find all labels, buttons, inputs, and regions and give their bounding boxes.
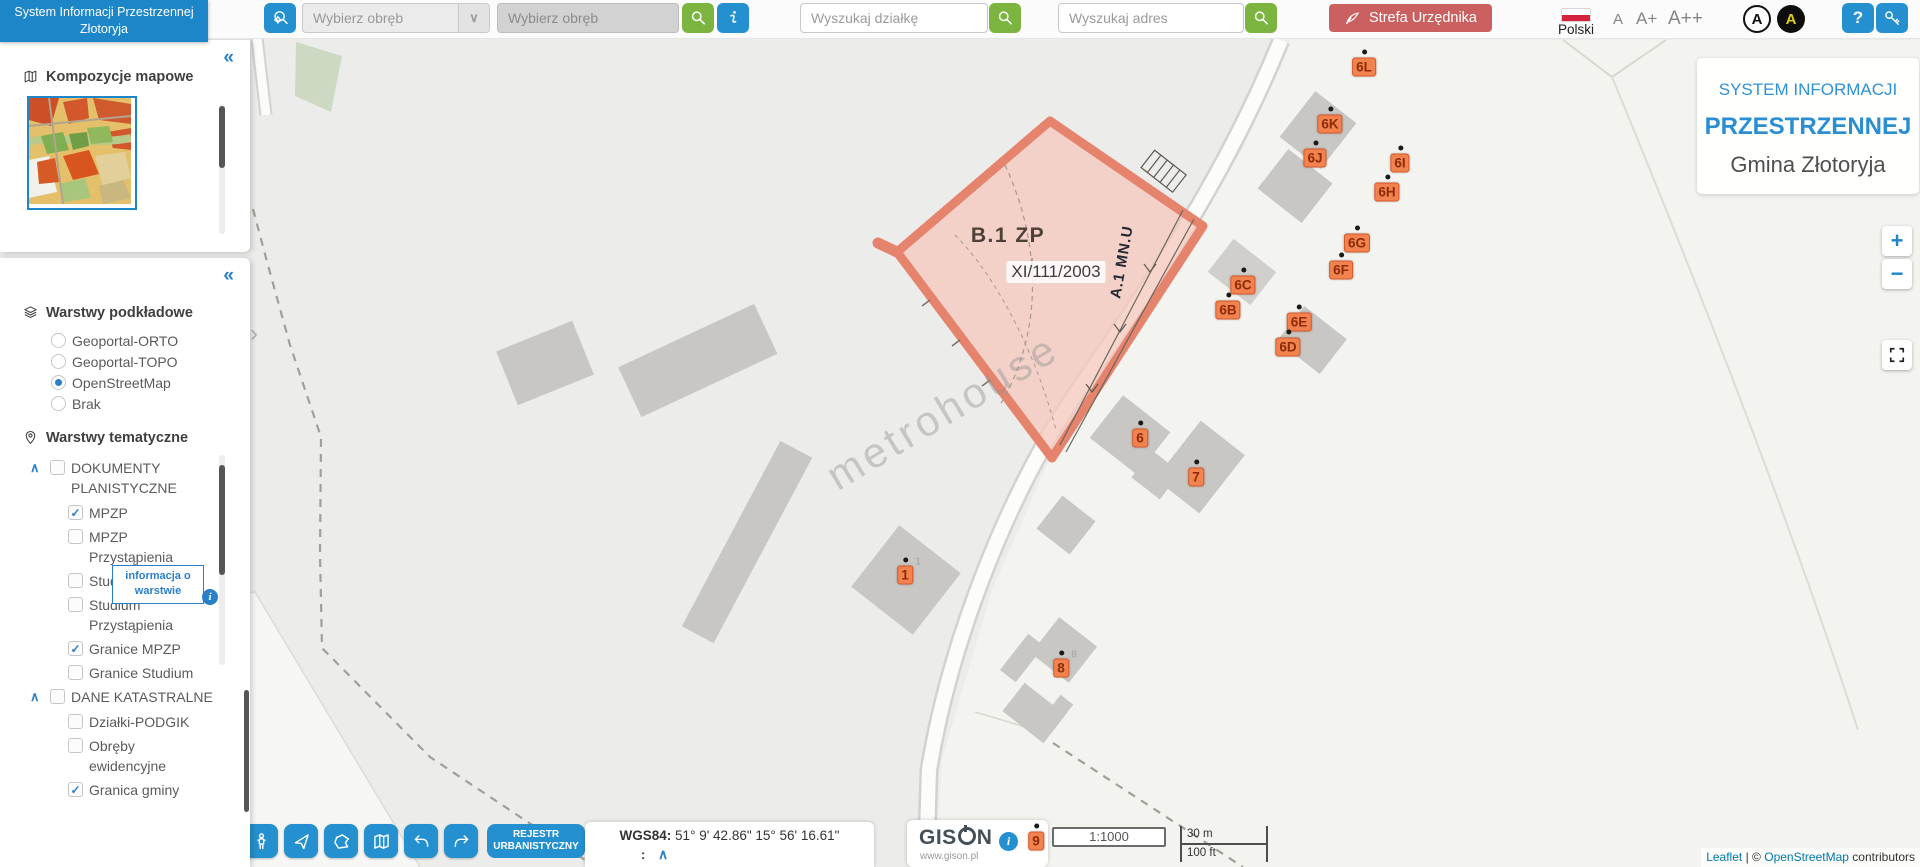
fullscreen-icon bbox=[1887, 345, 1907, 365]
panel-expand-arrow-icon[interactable]: › bbox=[250, 320, 266, 350]
checkbox[interactable] bbox=[50, 460, 65, 475]
rejestr-urbanistyczny-label: REJESTR URBANISTYCZNY bbox=[491, 829, 581, 854]
tool-navigate-button[interactable] bbox=[284, 824, 318, 858]
scale-ratio-input[interactable]: 1:1000 bbox=[1052, 827, 1166, 847]
coords-label: WGS84: bbox=[620, 828, 672, 843]
layer-item-label: Granica gminy bbox=[89, 780, 179, 800]
layer-item-row[interactable]: Działki-PODGIK bbox=[68, 712, 250, 732]
zoom-out-button[interactable]: − bbox=[1882, 259, 1912, 289]
layer-tooltip: informacja o warstwie bbox=[112, 565, 204, 604]
layer-item-row[interactable]: Obręby ewidencyjne bbox=[68, 736, 250, 776]
chevron-up-icon[interactable]: ∧ bbox=[30, 687, 44, 707]
chevron-down-icon[interactable]: ∨ bbox=[458, 4, 489, 32]
tool-draw-polygon-button[interactable] bbox=[324, 824, 358, 858]
zoom-control: + − bbox=[1882, 226, 1912, 292]
checkbox-checked[interactable]: ✓ bbox=[68, 505, 83, 520]
app-title-text: System Informacji Przestrzennej Złotoryj… bbox=[8, 4, 200, 38]
layer-group-row[interactable]: ∧DOKUMENTY PLANISTYCZNE bbox=[30, 458, 250, 498]
adres-search-button[interactable] bbox=[1245, 3, 1277, 33]
base-layer-option[interactable]: Geoportal-ORTO bbox=[51, 330, 250, 351]
layer-item-label: Działki-PODGIK bbox=[89, 712, 189, 732]
green-area bbox=[295, 42, 342, 112]
map-marker-6I[interactable]: 6I bbox=[1390, 154, 1409, 173]
info-script-icon bbox=[723, 8, 743, 28]
app-title: System Informacji Przestrzennej Złotoryj… bbox=[0, 0, 208, 42]
obreb-select[interactable]: Wybierz obręb ∨ bbox=[302, 3, 490, 33]
checkbox[interactable] bbox=[68, 665, 83, 680]
gison-url[interactable]: www.gison.pl bbox=[920, 851, 978, 862]
map-title-card: SYSTEM INFORMACJI PRZESTRZENNEJ Gmina Zł… bbox=[1697, 58, 1919, 194]
map-graphics: metrohouse bbox=[0, 0, 1920, 867]
strefa-urzednika-label: Strefa Urzędnika bbox=[1369, 10, 1477, 26]
map-marker-6C[interactable]: 6C bbox=[1230, 276, 1255, 295]
obreb-select-value: Wybierz obręb bbox=[303, 10, 458, 26]
map-marker-6K[interactable]: 6K bbox=[1317, 115, 1342, 134]
fullscreen-button[interactable] bbox=[1882, 340, 1912, 370]
title-line-1: SYSTEM INFORMACJI bbox=[1697, 80, 1919, 100]
map-pin-icon bbox=[22, 429, 39, 446]
key-icon bbox=[1882, 8, 1902, 28]
advanced-search-button[interactable] bbox=[264, 3, 296, 33]
marker-ghost-label: 8 bbox=[1071, 647, 1077, 664]
navigate-icon bbox=[291, 831, 312, 852]
base-layer-label: OpenStreetMap bbox=[72, 373, 171, 393]
radio[interactable] bbox=[51, 396, 66, 411]
map-marker-6D[interactable]: 6D bbox=[1275, 338, 1300, 357]
rejestr-urbanistyczny-button[interactable]: REJESTR URBANISTYCZNY bbox=[487, 824, 585, 858]
checkbox[interactable] bbox=[68, 529, 83, 544]
gison-logo: GISN bbox=[919, 826, 992, 850]
checkbox-checked[interactable]: ✓ bbox=[68, 641, 83, 656]
marker-point-dot bbox=[1362, 50, 1367, 55]
radio-selected[interactable] bbox=[51, 375, 66, 390]
undo-icon bbox=[411, 831, 432, 852]
draw-polygon-icon bbox=[331, 831, 352, 852]
poland-flag-icon[interactable] bbox=[1561, 8, 1591, 22]
marker-point-dot bbox=[1241, 268, 1246, 273]
map-marker-6L[interactable]: 6L bbox=[1352, 58, 1376, 77]
map-marker-1[interactable]: 11 bbox=[897, 566, 913, 585]
marker-point-dot bbox=[1313, 141, 1318, 146]
radio[interactable] bbox=[51, 333, 66, 348]
obreb-info-button[interactable] bbox=[717, 3, 749, 33]
map-marker-9[interactable]: 9 bbox=[1028, 832, 1044, 851]
zoom-in-button[interactable]: + bbox=[1882, 226, 1912, 256]
map-marker-6J[interactable]: 6J bbox=[1303, 149, 1326, 168]
layers-icon bbox=[22, 304, 39, 321]
scrollbar-thumb[interactable] bbox=[219, 106, 225, 168]
adres-search-input[interactable] bbox=[1058, 3, 1244, 33]
marker-point-dot bbox=[1194, 460, 1199, 465]
checkbox[interactable] bbox=[68, 597, 83, 612]
scrollbar-thumb[interactable] bbox=[244, 690, 249, 812]
application-window: metrohouse B.1 ZP XI/111/2003 A.1 MN.U 6… bbox=[0, 0, 1920, 867]
coordinates-panel: WGS84: 51° 9' 42.86" 15° 56' 16.61" : ∧ bbox=[585, 822, 874, 867]
info-circle-icon[interactable]: i bbox=[999, 832, 1018, 851]
collapse-up-icon[interactable]: ∧ bbox=[658, 846, 668, 862]
search-icon bbox=[995, 8, 1015, 28]
dzialka-search-button[interactable] bbox=[989, 3, 1021, 33]
language-label[interactable]: Polski bbox=[1545, 22, 1607, 37]
kompozycje-title: Kompozycje mapowe bbox=[46, 69, 193, 85]
marker-point-dot bbox=[1328, 107, 1333, 112]
map-marker-6G[interactable]: 6G bbox=[1344, 234, 1370, 253]
attribution-copyright: © bbox=[1752, 850, 1761, 864]
map-marker-6E[interactable]: 6E bbox=[1287, 313, 1312, 332]
collapse-panel-icon[interactable]: « bbox=[223, 266, 234, 285]
map-canvas[interactable]: metrohouse bbox=[0, 38, 1920, 867]
map-attribution: Leaflet | © OpenStreetMap contributors bbox=[1701, 848, 1920, 867]
map-marker-6F[interactable]: 6F bbox=[1329, 261, 1353, 280]
top-toolbar: Wybierz obręb ∨ bbox=[0, 0, 1920, 39]
obreb-search-button[interactable] bbox=[682, 3, 714, 33]
layer-item-label: MPZP Przystąpienia bbox=[89, 527, 211, 567]
tool-undo-button[interactable] bbox=[404, 824, 438, 858]
map-icon bbox=[22, 68, 39, 85]
search-gear-icon bbox=[270, 8, 291, 29]
base-layer-label: Geoportal-ORTO bbox=[72, 331, 178, 351]
map-marker-6H[interactable]: 6H bbox=[1374, 183, 1399, 202]
font-size-largest-button[interactable]: A++ bbox=[1668, 0, 1703, 38]
zone-label: B.1 ZP bbox=[971, 224, 1045, 248]
marker-point-dot bbox=[1339, 253, 1344, 258]
map-marker-6[interactable]: 6 bbox=[1132, 429, 1148, 448]
marker-point-dot bbox=[1226, 293, 1231, 298]
layer-group-label: DANE KATASTRALNE bbox=[71, 687, 213, 707]
checkbox[interactable] bbox=[50, 689, 65, 704]
coords-colon: : bbox=[641, 847, 645, 862]
podkladowe-title: Warstwy podkładowe bbox=[46, 305, 193, 321]
tool-map-layers-button[interactable] bbox=[364, 824, 398, 858]
checkbox[interactable] bbox=[68, 573, 83, 588]
base-layer-option[interactable]: OpenStreetMap bbox=[51, 372, 250, 393]
scale-bar: 30 m 100 ft bbox=[1180, 826, 1268, 862]
font-size-large-button[interactable]: A+ bbox=[1636, 0, 1657, 38]
collapse-panel-icon[interactable]: « bbox=[223, 48, 234, 67]
map-marker-6B[interactable]: 6B bbox=[1215, 301, 1240, 320]
check-icon: ✓ bbox=[70, 643, 80, 655]
thumbnail-mosaic bbox=[29, 98, 131, 204]
attribution-separator: | bbox=[1746, 850, 1749, 864]
marker-point-dot bbox=[1398, 146, 1403, 151]
base-layer-list: Geoportal-ORTOGeoportal-TOPOOpenStreetMa… bbox=[51, 330, 250, 414]
map-compositions-panel: « Kompozycje mapowe bbox=[0, 40, 250, 252]
coords-value: 51° 9' 42.86" 15° 56' 16.61" bbox=[675, 828, 839, 843]
base-layer-option[interactable]: Geoportal-TOPO bbox=[51, 351, 250, 372]
layers-panel: « Warstwy podkładowe Geoportal-ORTOGeopo… bbox=[0, 258, 250, 867]
marker-point-dot bbox=[1355, 226, 1360, 231]
search-icon bbox=[688, 8, 708, 28]
gison-panel: GISN www.gison.pl i bbox=[907, 820, 1048, 867]
contrast-normal-button[interactable]: A bbox=[1743, 5, 1771, 33]
gison-o-power-icon bbox=[958, 827, 976, 845]
street-view-icon bbox=[251, 831, 272, 852]
map-marker-8[interactable]: 88 bbox=[1053, 659, 1069, 678]
marker-point-dot bbox=[1059, 651, 1064, 656]
strefa-urzednika-button[interactable]: Strefa Urzędnika bbox=[1329, 4, 1492, 32]
chevron-up-icon[interactable]: ∧ bbox=[30, 458, 44, 478]
contrast-high-button[interactable]: A bbox=[1777, 5, 1805, 33]
layer-info-icon[interactable]: i bbox=[202, 589, 218, 605]
map-composition-thumbnail[interactable] bbox=[27, 96, 137, 210]
quill-icon bbox=[1344, 10, 1361, 27]
search-icon bbox=[1251, 8, 1271, 28]
zone-document-label: XI/111/2003 bbox=[1006, 261, 1105, 283]
marker-ghost-label: 1 bbox=[915, 554, 921, 571]
scrollbar-thumb[interactable] bbox=[219, 465, 225, 575]
layer-group-row[interactable]: ∧DANE KATASTRALNE bbox=[30, 687, 250, 707]
leaflet-link[interactable]: Leaflet bbox=[1706, 850, 1742, 864]
layer-item-label: MPZP bbox=[89, 503, 128, 523]
marker-point-dot bbox=[1286, 330, 1291, 335]
layer-item-row[interactable]: ✓Granica gminy bbox=[68, 780, 250, 800]
layer-tree: ∧DOKUMENTY PLANISTYCZNE✓MPZPMPZP Przystą… bbox=[0, 458, 250, 800]
parcel-areas bbox=[0, 40, 1920, 867]
tematyczne-title: Warstwy tematyczne bbox=[46, 430, 188, 446]
check-icon: ✓ bbox=[70, 507, 80, 519]
font-size-normal-button[interactable]: A bbox=[1613, 0, 1623, 38]
map-layers-icon bbox=[371, 831, 392, 852]
marker-point-dot bbox=[1385, 175, 1390, 180]
help-button[interactable]: ? bbox=[1842, 3, 1874, 33]
base-layer-option[interactable]: Brak bbox=[51, 393, 250, 414]
base-layer-label: Brak bbox=[72, 394, 101, 414]
layer-item-label: Granice MPZP bbox=[89, 639, 181, 659]
attribution-suffix: contributors bbox=[1852, 850, 1915, 864]
map-marker-7[interactable]: 7 bbox=[1188, 468, 1204, 487]
checkbox[interactable] bbox=[68, 714, 83, 729]
marker-point-dot bbox=[1034, 824, 1039, 829]
layer-item-row[interactable]: Granice Studium bbox=[68, 663, 250, 683]
marker-point-dot bbox=[903, 558, 908, 563]
layer-item-label: Obręby ewidencyjne bbox=[89, 736, 211, 776]
tool-redo-button[interactable] bbox=[444, 824, 478, 858]
title-line-2: PRZESTRZENNEJ bbox=[1697, 113, 1919, 141]
base-layer-label: Geoportal-TOPO bbox=[72, 352, 178, 372]
scale-imperial: 100 ft bbox=[1182, 845, 1266, 862]
title-line-3: Gmina Złotoryja bbox=[1697, 152, 1919, 178]
radio[interactable] bbox=[51, 354, 66, 369]
dzialka-search-input[interactable] bbox=[800, 3, 988, 33]
checkbox[interactable] bbox=[68, 738, 83, 753]
scale-metric: 30 m bbox=[1182, 826, 1266, 845]
checkbox-checked[interactable]: ✓ bbox=[68, 782, 83, 797]
redo-icon bbox=[451, 831, 472, 852]
login-key-button[interactable] bbox=[1876, 3, 1908, 33]
layer-group-label: DOKUMENTY PLANISTYCZNE bbox=[71, 458, 213, 498]
layer-item-label: Granice Studium bbox=[89, 663, 193, 683]
marker-point-dot bbox=[1138, 421, 1143, 426]
obreb-input[interactable] bbox=[497, 3, 679, 33]
check-icon: ✓ bbox=[70, 784, 80, 796]
osm-link[interactable]: OpenStreetMap bbox=[1764, 850, 1849, 864]
